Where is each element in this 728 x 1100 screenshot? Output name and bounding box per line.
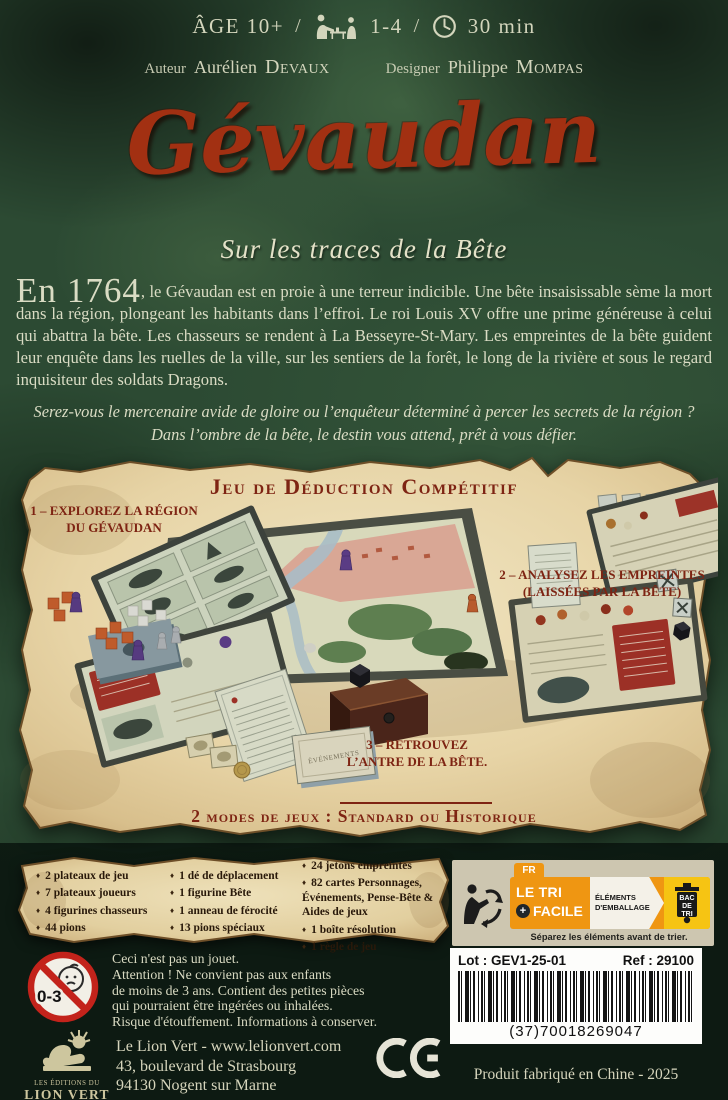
callout-analyze: 2 – ANALYSEZ LES EMPREINTES (LAISSÉES PA… (486, 567, 718, 601)
address-line: 43, boulevard de Strasbourg (116, 1057, 341, 1077)
bin-line3: TRI (681, 911, 692, 918)
bin-icon: BAC DE TRI (671, 882, 703, 924)
warning-line: de moins de 3 ans. Contient des petites … (112, 983, 377, 999)
specs-row: ÂGE 10+ / 1-4 / 30 min (0, 13, 728, 39)
intro-quote: Serez-vous le mercenaire avide de gloire… (14, 401, 714, 446)
lion-icon (35, 1028, 99, 1074)
intro-paragraph: En 1764, le Gévaudan est en proie à une … (16, 281, 712, 390)
age-label: ÂGE 10+ (192, 14, 284, 39)
callout-find-lair: 3 – RETROUVEZ L’ANTRE DE LA BÊTE. (305, 737, 529, 771)
age-0-3-warning-icon: 0-3 (26, 950, 100, 1024)
component-item: 1 dé de déplacement (170, 868, 278, 885)
elements-line2: D'EMBALLAGE (595, 903, 664, 913)
showcase-panel: ÉVÉNEMENTS (10, 450, 718, 847)
warning-line: Attention ! Ne convient pas aux enfants (112, 967, 377, 983)
tri-line1: LE TRI (516, 884, 590, 900)
dice-tile (673, 598, 692, 617)
safety-warning: Ceci n'est pas un jouet. Attention ! Ne … (112, 951, 377, 1030)
component-item: 13 pions spéciaux (170, 920, 278, 937)
publisher-address: Le Lion Vert - www.lelionvert.com 43, bo… (116, 1037, 341, 1096)
callout-explore-line1: 1 – EXPLOREZ LA RÉGION (30, 503, 198, 518)
callout-explore-line2: DU GÉVAUDAN (66, 520, 161, 535)
designer-first-name: Philippe (448, 57, 508, 78)
designer-label: Designer (386, 61, 440, 78)
publisher-logo-line1: LES ÉDITIONS DU (20, 1080, 114, 1087)
component-item: 1 boîte résolution (302, 923, 452, 937)
designer-last-name: Mompas (516, 56, 584, 79)
age-badge-label: 0-3 (37, 987, 62, 1006)
barcode (458, 971, 694, 1022)
callout-explore: 1 – EXPLOREZ LA RÉGION DU GÉVAUDAN (14, 503, 214, 537)
made-in-label: Produit fabriqué en Chine - 2025 (450, 1066, 702, 1084)
player-count-label: 1-4 (370, 14, 403, 39)
components-column-3: 24 jetons empreintes 82 cartes Personnag… (302, 859, 452, 957)
bin-line1: BAC (679, 895, 694, 902)
modes-divider (340, 802, 492, 804)
credits-row: Auteur Aurélien Devaux Designer Philippe… (0, 56, 728, 79)
packaging-elements-label: ÉLÉMENTS D'EMBALLAGE (590, 877, 664, 929)
game-subtitle: Sur les traces de la Bête (0, 234, 728, 265)
callout-find-lair-line2: L’ANTRE DE LA BÊTE. (347, 754, 487, 769)
components-strip: 2 plateaux de jeu 7 plateaux joueurs 4 f… (14, 850, 456, 954)
fr-tag: FR (514, 863, 544, 878)
address-line: 94130 Nogent sur Marne (116, 1076, 341, 1096)
components-column-2: 1 dé de déplacement 1 figurine Bête 1 an… (170, 868, 278, 937)
sorting-bin-panel: BAC DE TRI (664, 877, 710, 929)
warning-line: Ceci n'est pas un jouet. (112, 951, 377, 967)
tri-facile-panel: LE TRI + FACILE ÉLÉMENTS D'EMBALLAGE BAC… (510, 877, 710, 929)
ce-mark-icon (360, 1038, 444, 1078)
component-item: 1 anneau de férocité (170, 903, 278, 920)
players-icon (313, 13, 359, 39)
barcode-number: (37)70018269047 (458, 1023, 694, 1040)
address-line: Le Lion Vert - www.lelionvert.com (116, 1037, 341, 1057)
components-column-1: 2 plateaux de jeu 7 plateaux joueurs 4 f… (36, 868, 147, 937)
warning-line: qui pourraient être ingérées ou inhalées… (112, 998, 377, 1014)
plus-icon: + (516, 904, 530, 918)
elements-line1: ÉLÉMENTS (595, 893, 664, 903)
callout-analyze-line2: (LAISSÉES PAR LA BÊTE) (523, 584, 681, 599)
publisher-logo: LES ÉDITIONS DU LION VERT (20, 1028, 114, 1100)
ref-number: Ref : 29100 (623, 953, 694, 968)
component-item: 4 figurines chasseurs (36, 903, 147, 920)
beast-meeple (340, 550, 352, 570)
quote-line1: Serez-vous le mercenaire avide de gloire… (34, 402, 695, 421)
author-label: Auteur (144, 61, 186, 78)
game-box-back: ÂGE 10+ / 1-4 / 30 min Auteur Aurélien D… (0, 0, 728, 1100)
publisher-logo-line2: LION VERT (20, 1087, 114, 1100)
play-time-label: 30 min (468, 14, 536, 39)
tri-line2: FACILE (533, 903, 583, 919)
component-item: 7 plateaux joueurs (36, 885, 147, 902)
component-item: 82 cartes Personnages, Événements, Pense… (302, 876, 452, 919)
callout-analyze-line1: 2 – ANALYSEZ LES EMPREINTES (499, 567, 704, 582)
component-item: 24 jetons empreintes (302, 859, 452, 873)
component-item: 2 plateaux de jeu (36, 868, 147, 885)
warning-line: Risque d'étouffement. Informations à con… (112, 1014, 377, 1030)
callout-find-lair-line1: 3 – RETROUVEZ (366, 737, 468, 752)
clock-icon (432, 14, 457, 39)
modes-line: 2 modes de jeux : Standard ou Historique (10, 806, 718, 827)
separator: / (414, 15, 421, 38)
tri-facile-label: LE TRI + FACILE (510, 877, 590, 929)
separator: / (295, 15, 302, 38)
quote-line2: Dans l’ombre de la bête, le destin vous … (151, 425, 577, 444)
author-last-name: Devaux (265, 56, 330, 79)
sorting-instruction: Séparez les éléments avant de trier. (506, 932, 712, 942)
author-first-name: Aurélien (194, 57, 257, 78)
recycling-info: FR LE TRI + FACILE ÉLÉMENTS D'EMBALLAGE (452, 860, 714, 946)
bin-line2: DE (682, 903, 692, 910)
component-item: 1 figurine Bête (170, 885, 278, 902)
triman-icon (455, 878, 507, 930)
product-label: Lot : GEV1-25-01 Ref : 29100 (37)7001826… (450, 948, 702, 1044)
component-item: 44 pions (36, 920, 147, 937)
lot-number: Lot : GEV1-25-01 (458, 953, 566, 968)
showcase-heading: Jeu de Déduction Compétitif (10, 474, 718, 500)
